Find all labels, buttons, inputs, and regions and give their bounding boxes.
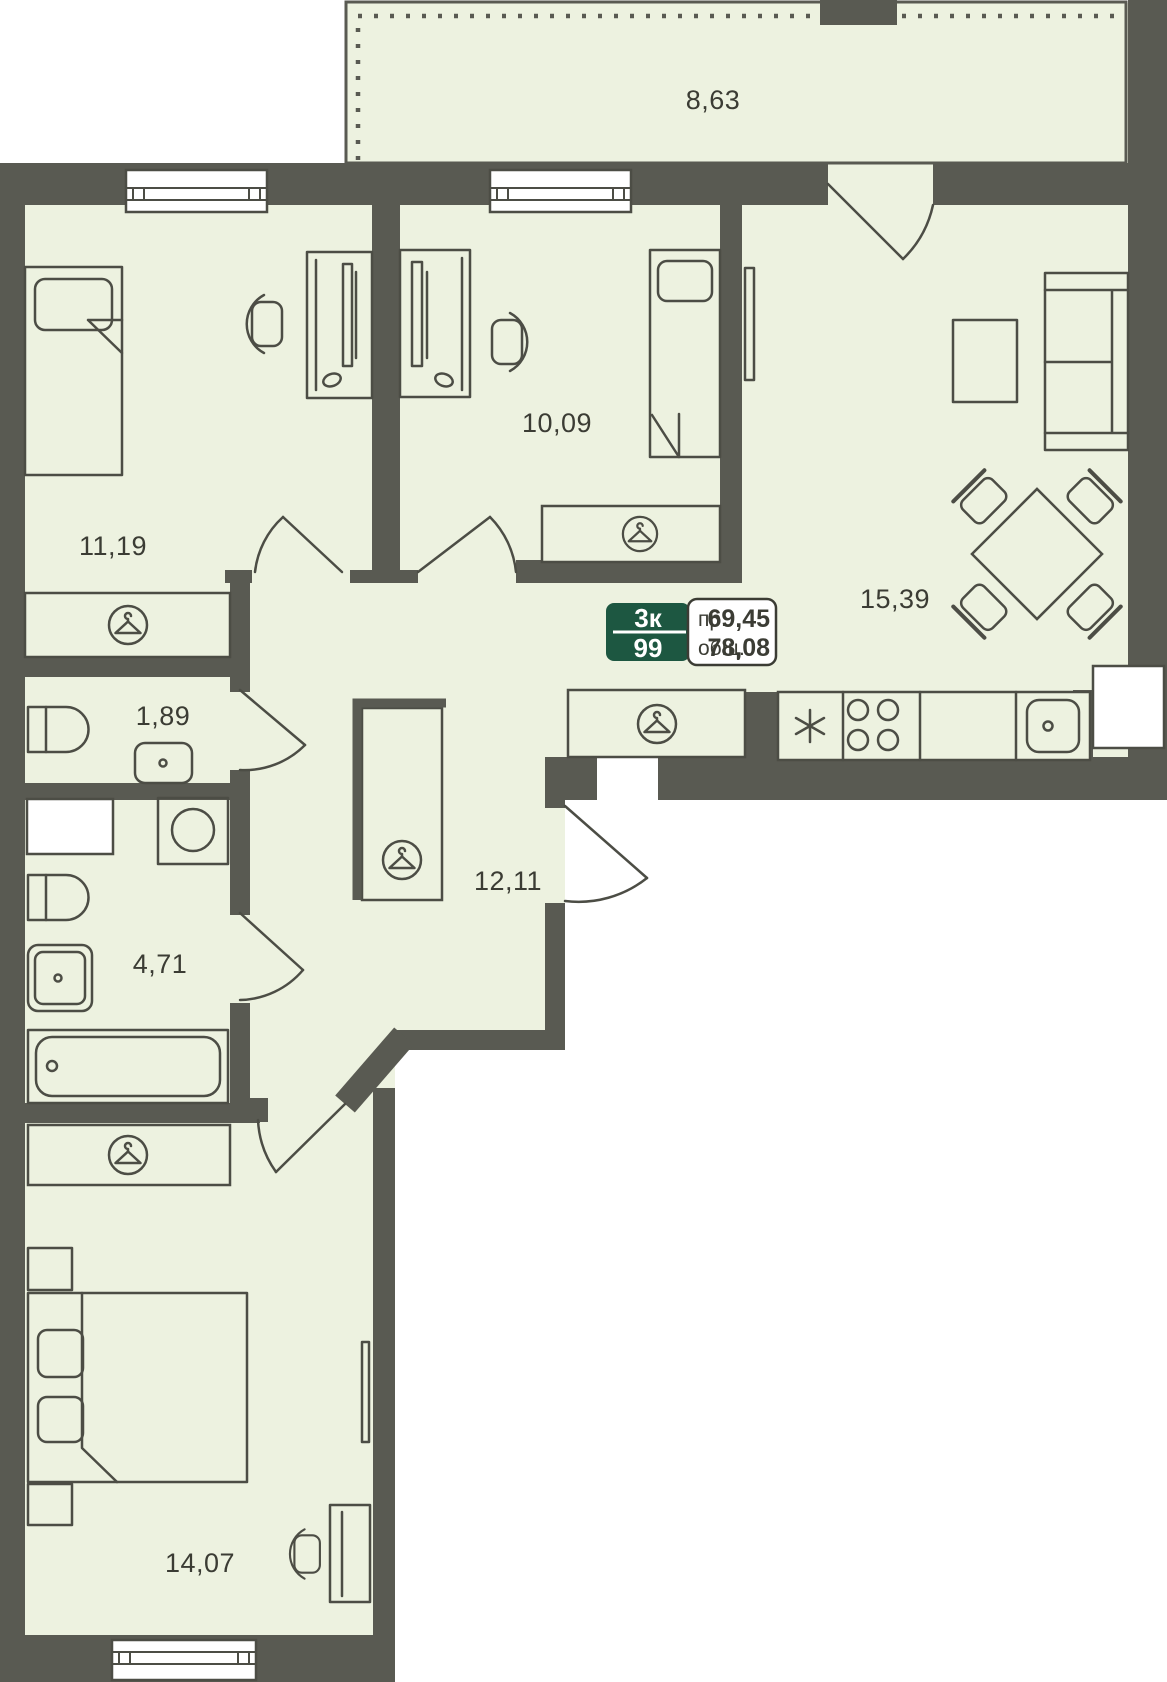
shaft-box [1093,666,1164,748]
room-area-label-bedroom-2: 10,09 [522,408,592,438]
room-area-label-hallway: 12,11 [474,866,542,896]
wardrobe-icon [542,506,720,562]
room-area-label-bedroom-1: 11,19 [79,531,147,561]
entrance-recess [597,757,658,800]
window-icon [126,170,267,212]
floor-areas [25,3,1128,1635]
badge-unit-number: 99 [634,633,663,663]
floor-plan-page: 8,63 11,19 10,09 15,39 1,89 4,71 12,11 1… [0,0,1167,1682]
window-icon [490,170,631,212]
badge-total-value: 78,08 [707,634,770,662]
kitchen-counter [778,692,1090,760]
room-area-label-bedroom-3: 14,07 [165,1548,235,1578]
wardrobe-icon [28,1125,230,1185]
room-area-label-living: 15,39 [860,584,930,614]
badge-projected-value: 69,45 [707,605,770,633]
wardrobe-icon [568,690,745,757]
floor-plan: 8,63 11,19 10,09 15,39 1,89 4,71 12,11 1… [0,0,1167,1682]
shaft-box [27,799,113,854]
entrance-door-swing-icon [565,806,647,902]
wardrobe-icon [25,593,230,657]
room-area-label-wc: 1,89 [136,701,191,731]
wardrobe-icon [357,703,446,900]
unit-info-badge: 3к 99 пр. 69,45 общ. 78,08 [606,599,776,665]
room-area-label-bathroom: 4,71 [133,949,188,979]
badge-rooms-count: 3к [634,603,662,633]
window-icon [112,1640,256,1680]
room-area-label-terrace: 8,63 [686,85,741,115]
